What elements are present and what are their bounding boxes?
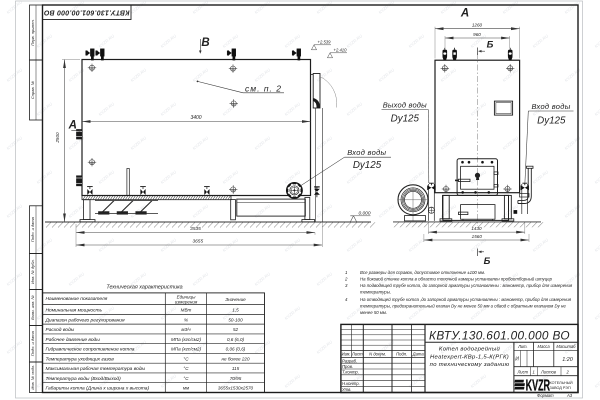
svg-text:Масштаб: Масштаб bbox=[556, 344, 576, 349]
svg-text:В: В bbox=[201, 37, 209, 49]
svg-text:А: А bbox=[68, 120, 77, 132]
svg-text:1430: 1430 bbox=[471, 226, 482, 231]
svg-text:Техническая характеристика: Техническая характеристика bbox=[106, 284, 182, 290]
svg-text:Т.контр.: Т.контр. bbox=[342, 370, 359, 375]
svg-text:Формат: Формат bbox=[537, 393, 554, 398]
svg-text:Инв. № дубл.: Инв. № дубл. bbox=[30, 259, 35, 284]
svg-text:+2.539: +2.539 bbox=[318, 39, 332, 44]
svg-text:Dy125: Dy125 bbox=[537, 115, 566, 126]
svg-text:МПа (кгс/см2): МПа (кгс/см2) bbox=[171, 337, 201, 342]
svg-text:Вход воды: Вход воды bbox=[531, 102, 570, 111]
svg-text:На отводящей трубе котла ,до з: На отводящей трубе котла ,до запорной ар… bbox=[360, 297, 572, 302]
svg-text:Подп. и дата: Подп. и дата bbox=[30, 330, 35, 356]
svg-text:1:20: 1:20 bbox=[562, 357, 573, 363]
svg-text:МВт: МВт bbox=[181, 308, 192, 313]
svg-text:1260: 1260 bbox=[472, 23, 483, 28]
svg-text:Значение: Значение bbox=[225, 297, 246, 302]
svg-text:Б: Б bbox=[487, 40, 494, 51]
svg-text:КВТУ.130.601.00.000 ВО: КВТУ.130.601.00.000 ВО bbox=[429, 328, 570, 342]
svg-text:1,5: 1,5 bbox=[232, 308, 239, 313]
svg-text:960: 960 bbox=[473, 32, 481, 37]
svg-text:температуры.: температуры. bbox=[360, 290, 391, 295]
svg-text:м3/ч: м3/ч bbox=[181, 327, 191, 332]
svg-text:%: % bbox=[184, 317, 188, 322]
svg-text:Рабочее давление воды: Рабочее давление воды bbox=[46, 337, 101, 343]
svg-text:Н.контр.: Н.контр. bbox=[342, 381, 360, 386]
svg-text:Изм.: Изм. bbox=[342, 352, 351, 357]
svg-text:На боковой стенке котла в обла: На боковой стенке котла в области топочн… bbox=[360, 277, 553, 282]
svg-text:КОТЕЛЬНЫЙ: КОТЕЛЬНЫЙ bbox=[550, 381, 573, 385]
svg-text:2: 2 bbox=[344, 277, 348, 282]
svg-text:2500: 2500 bbox=[55, 132, 60, 144]
svg-text:Справ. №: Справ. № bbox=[30, 80, 35, 99]
svg-text:Подп.: Подп. bbox=[396, 351, 407, 356]
svg-text:Лист: Лист bbox=[517, 370, 529, 375]
svg-text:Максимальная рабочая температу: Максимальная рабочая температура воды bbox=[46, 366, 146, 372]
svg-text:0,06 (0,6): 0,06 (0,6) bbox=[226, 347, 246, 352]
svg-text:°С: °С bbox=[183, 356, 189, 361]
svg-text:Температура уходящих газов: Температура уходящих газов bbox=[46, 356, 115, 362]
svg-text:3655: 3655 bbox=[192, 239, 203, 245]
svg-text:70/95: 70/95 bbox=[230, 376, 242, 381]
svg-text:Диапазон рабочего регулировани: Диапазон рабочего регулирования bbox=[45, 317, 125, 323]
svg-text:Пров.: Пров. bbox=[342, 364, 353, 369]
svg-text:Dy125: Dy125 bbox=[391, 114, 420, 125]
svg-text:Перв. примен.: Перв. примен. bbox=[30, 19, 35, 46]
svg-text:Все размеры для справок, допус: Все размеры для справок, допустимое откл… bbox=[360, 270, 485, 275]
svg-text:Габариты котла (Длина х ширина: Габариты котла (Длина х ширина х высота) bbox=[46, 386, 150, 392]
svg-text:°С: °С bbox=[183, 366, 189, 371]
svg-text:по техническому заданию: по техническому заданию bbox=[430, 362, 510, 368]
svg-text:115: 115 bbox=[232, 366, 240, 371]
svg-text:не более 220: не более 220 bbox=[221, 356, 249, 361]
svg-text:Масса: Масса bbox=[538, 344, 551, 349]
svg-text:Вход воды: Вход воды bbox=[347, 148, 386, 157]
svg-text:Лист: Лист bbox=[351, 351, 363, 356]
svg-text:Dy125: Dy125 bbox=[353, 160, 382, 171]
svg-text:Подп. и дата: Подп. и дата bbox=[30, 216, 35, 242]
svg-text:мм: мм bbox=[183, 386, 190, 391]
svg-text:температуры, предохранительный: температуры, предохранительный клапан Dу… bbox=[360, 304, 566, 309]
svg-text:Выход воды: Выход воды bbox=[383, 101, 427, 110]
svg-text:Номинальная мощность: Номинальная мощность bbox=[46, 308, 103, 314]
svg-text:А: А bbox=[460, 8, 469, 20]
svg-text:На подводящей трубе котла, д: На подводящей трубе котла, до запорной а… bbox=[360, 283, 573, 288]
svg-text:Котел водогрейный: Котел водогрейный bbox=[439, 345, 501, 352]
svg-text:Температура воды (Вход/Выход): Температура воды (Вход/Выход) bbox=[46, 376, 122, 382]
svg-text:измерения: измерения bbox=[175, 300, 198, 305]
svg-text:50-100: 50-100 bbox=[228, 317, 243, 322]
svg-text:Heatexpert-КВр-1,5-К(РГК): Heatexpert-КВр-1,5-К(РГК) bbox=[430, 354, 509, 360]
svg-text:Б: Б bbox=[484, 256, 491, 267]
svg-text:3655х1530х2570: 3655х1530х2570 bbox=[218, 386, 254, 391]
svg-text:Взам. инв. №: Взам. инв. № bbox=[30, 294, 35, 319]
svg-text:52: 52 bbox=[233, 327, 239, 332]
svg-text:Утв.: Утв. bbox=[342, 387, 352, 392]
svg-text:+2.410: +2.410 bbox=[334, 47, 348, 52]
svg-text:3535: 3535 bbox=[190, 226, 201, 232]
svg-text:3400: 3400 bbox=[190, 115, 201, 121]
svg-text:Гидравлическое сопротивление к: Гидравлическое сопротивление котла bbox=[46, 347, 135, 353]
svg-text:N докум.: N докум. bbox=[369, 351, 386, 356]
svg-text:см. п. 2: см. п. 2 bbox=[245, 84, 282, 94]
svg-text:А3: А3 bbox=[566, 393, 573, 398]
svg-text:Листов: Листов bbox=[540, 370, 557, 375]
svg-text:KVZR: KVZR bbox=[526, 377, 550, 394]
svg-text:Наименование показателя: Наименование показателя bbox=[46, 296, 108, 302]
svg-text:менее 50 мм.: менее 50 мм. bbox=[360, 310, 387, 315]
svg-text:МПа (кгс/см2): МПа (кгс/см2) bbox=[171, 347, 201, 352]
svg-text:Лит.: Лит. bbox=[517, 344, 528, 349]
svg-text:1: 1 bbox=[533, 370, 535, 375]
svg-text:Дата: Дата bbox=[412, 351, 425, 356]
svg-text:1560: 1560 bbox=[472, 234, 483, 239]
svg-text:ЗАВОД РЭП: ЗАВОД РЭП bbox=[550, 386, 571, 390]
svg-text:0,6 (6,0): 0,6 (6,0) bbox=[227, 337, 245, 342]
svg-text:КВТУ.130.601.00.000 ВО: КВТУ.130.601.00.000 ВО bbox=[44, 8, 130, 15]
svg-text:И: И bbox=[515, 357, 519, 363]
svg-text:Разраб.: Разраб. bbox=[342, 358, 357, 363]
svg-text:Расход воды: Расход воды bbox=[46, 327, 75, 333]
svg-text:°С: °С bbox=[183, 376, 189, 381]
svg-text:Инв. № подл.: Инв. № подл. bbox=[30, 365, 35, 390]
